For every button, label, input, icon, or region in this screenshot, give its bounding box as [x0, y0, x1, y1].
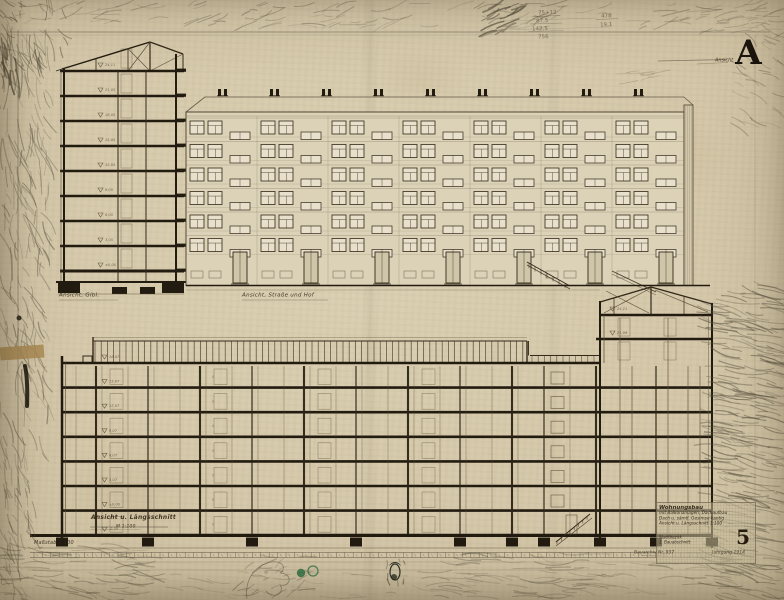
svg-text:8: 8	[212, 424, 214, 428]
caption-scale-note: Maßstab 1:100	[34, 540, 74, 546]
green-dot	[297, 569, 305, 577]
title-block-footer-left: Bauarchiv Nr. 937	[634, 550, 674, 555]
title-block-footer-mid: Jahrgang 1914	[712, 550, 745, 555]
svg-text:6,07: 6,07	[109, 453, 118, 457]
caption-long-section: Ansicht u. Längsschnitt	[91, 514, 176, 521]
revision-prefix: Ansicht	[715, 58, 733, 64]
svg-text:8: 8	[212, 400, 214, 404]
pencil-calc: 142,5	[532, 25, 548, 32]
svg-text:±0,00: ±0,00	[105, 263, 117, 267]
svg-text:21,05: 21,05	[105, 88, 116, 92]
caption-street-elevation: Ansicht, Straße und Hof	[242, 292, 314, 298]
caption-long-section-scale: M 1:100	[116, 524, 136, 529]
svg-text:9,05: 9,05	[105, 188, 114, 192]
gable-section-drawing: 24,1121,0518,0515,0512,059,056,053,05±0,…	[56, 42, 188, 300]
svg-text:15,07: 15,07	[109, 380, 120, 384]
pencil-calc: 87,5	[536, 18, 548, 24]
svg-text:18,07: 18,07	[109, 355, 120, 359]
svg-text:24,11: 24,11	[105, 63, 115, 67]
svg-text:24,11: 24,11	[617, 307, 627, 311]
svg-text:8: 8	[212, 498, 214, 502]
street-elevation-drawing	[186, 89, 710, 300]
title-block-phase: 1. Bauabschnitt	[659, 540, 690, 545]
pencil-calc: 756	[538, 34, 549, 40]
svg-text:18,05: 18,05	[105, 113, 116, 117]
sheet-number: 5	[736, 529, 750, 545]
svg-text:±0,00: ±0,00	[109, 503, 121, 507]
svg-text:8: 8	[212, 523, 214, 527]
pencil-calc: 75+12	[538, 9, 557, 16]
svg-text:21,09: 21,09	[617, 331, 628, 335]
long-section-drawing: 18,0715,0712,079,076,073,07±0,00-2,2024,…	[30, 287, 718, 562]
caption-gable-elevation: Ansicht, Gibl.	[59, 292, 99, 298]
pencil-calc: 19,1	[600, 22, 612, 28]
margin-doodles	[232, 555, 405, 599]
pencil-calc: 478	[601, 13, 612, 19]
svg-text:12,05: 12,05	[105, 163, 116, 167]
drawing-sheet: 24,1121,0518,0515,0512,059,056,053,05±0,…	[0, 0, 784, 600]
svg-text:12,07: 12,07	[109, 404, 120, 408]
svg-text:9,07: 9,07	[109, 429, 118, 433]
svg-text:8: 8	[212, 473, 214, 477]
svg-text:8: 8	[212, 375, 214, 379]
revision-mark: Ansicht A	[700, 40, 762, 67]
svg-text:6,05: 6,05	[105, 213, 114, 217]
svg-text:15,05: 15,05	[105, 138, 116, 142]
svg-text:3,05: 3,05	[105, 238, 114, 242]
svg-text:8: 8	[212, 449, 214, 453]
revision-letter: A	[735, 40, 761, 67]
svg-text:3,07: 3,07	[109, 478, 118, 482]
